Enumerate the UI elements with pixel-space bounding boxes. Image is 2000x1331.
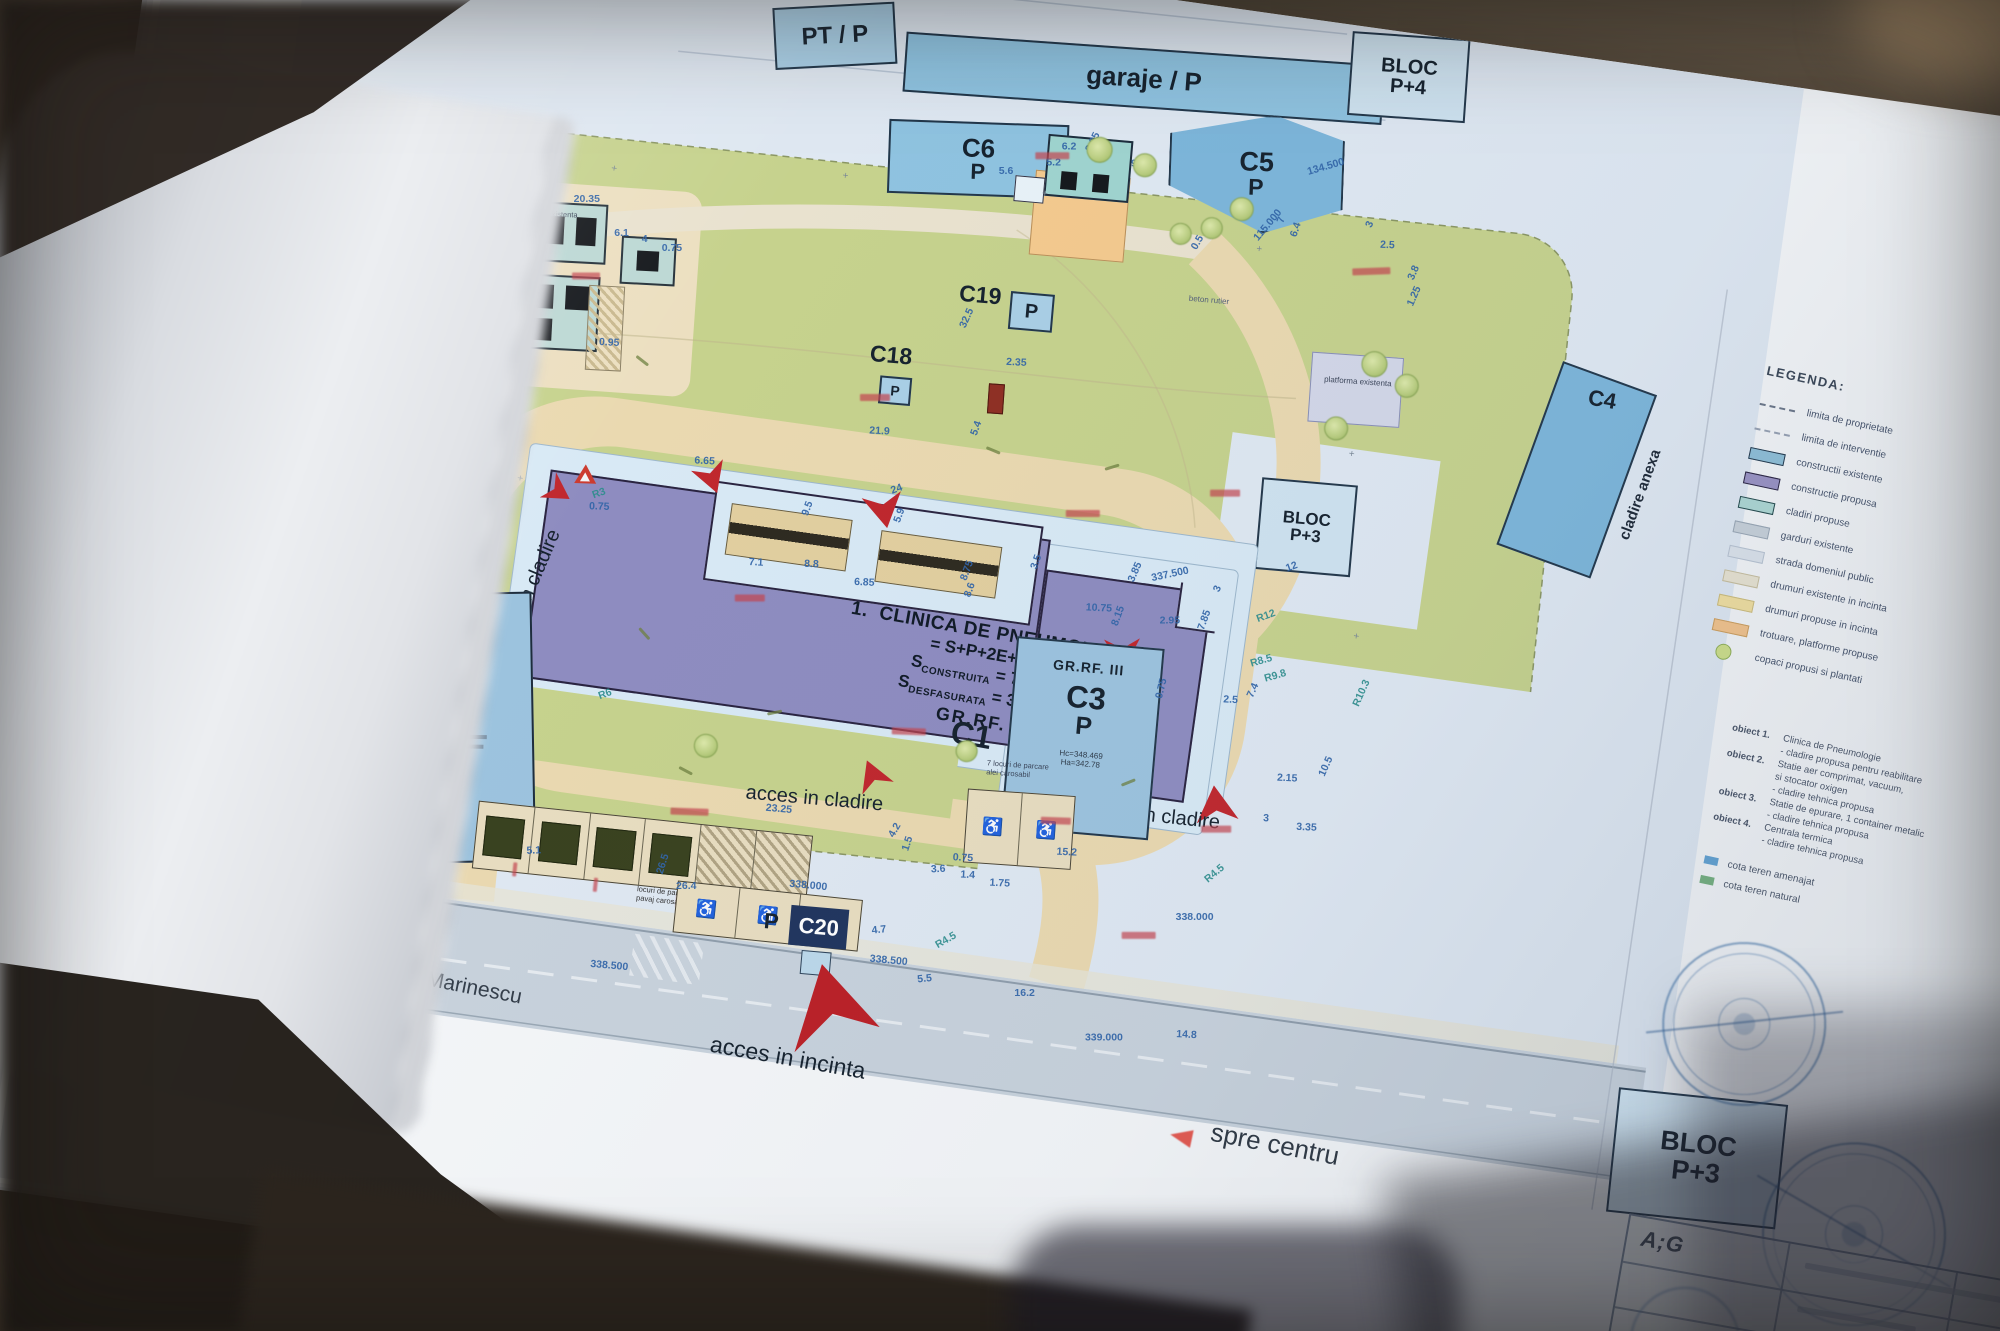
bloc-e-level: P+3 [1289,526,1321,546]
legend-swatch [1717,593,1755,612]
red-annotation [1122,932,1156,939]
red-annotation [735,594,765,601]
red-annotation [1041,817,1071,825]
red-annotation [572,273,600,280]
tech-kiosk [1013,175,1045,204]
legend-swatch [1754,427,1790,436]
building-bloc-ne: BLOC P+4 [1347,31,1471,123]
building-bloc-e: BLOC P+3 [1254,477,1358,577]
photo-scene: PT / P garaje / P C6 P BLOC P+4 C5 P C4 … [0,0,2000,1331]
legend-swatch [1748,446,1786,465]
legend-swatch [1722,569,1760,588]
building-c20-level: P [763,908,780,935]
legend-swatch [1760,402,1796,411]
building-garaje-label: garaje / P [1085,61,1202,96]
red-annotation [1352,267,1390,275]
wheelchair-icon: ♿ [695,899,718,921]
legend-swatch [1714,642,1733,661]
building-c3-fire-class: GR.RF. III [1053,657,1125,677]
container-object [987,383,1005,414]
c1-wing-step [1175,582,1221,633]
building-c18: P [878,375,912,406]
hand-shadow [1690,1010,2000,1331]
legend-swatch [1738,495,1776,514]
red-annotation [1066,510,1100,517]
building-c19-level: P [1024,301,1039,322]
red-annotation [1201,826,1231,833]
red-annotation [892,727,926,735]
building-c3-ha: Ha=342.78 [1060,758,1100,770]
legend-swatch [1712,618,1750,637]
annex-building [620,236,677,287]
wheelchair-icon: ♿ [981,817,1004,838]
existing-platform [1307,352,1404,428]
red-annotation [1210,490,1240,497]
building-c5-level: P [1248,176,1264,200]
c1-number: 1. [850,598,870,622]
red-annotation [1035,152,1069,159]
building-c3-name: C3 [1065,681,1107,716]
building-c19-name: C19 [958,280,1002,311]
cote-mark-icon [1703,855,1718,866]
cote-mark-icon [1699,875,1714,886]
red-annotation [860,394,890,401]
accessible-parking-row: ♿ ♿ [963,789,1076,870]
building-c6-level: P [970,161,985,184]
building-c19: P [1008,291,1055,333]
building-c18-level: P [890,383,901,398]
building-c20: C20 [788,905,849,950]
building-c5-name: C5 [1239,148,1274,177]
bloc-ne-level: P+4 [1389,76,1426,99]
building-pt-label: PT / P [801,22,869,50]
hatched-platform [585,285,625,372]
building-c6-name: C6 [961,134,995,162]
building-c4-name: C4 [1586,387,1618,414]
warning-triangle-icon [580,472,590,481]
legend-swatch [1727,544,1765,563]
building-c3-level: P [1074,713,1093,740]
background-blur [1850,0,2000,80]
legend-swatch [1733,520,1771,539]
building-c18-name: C18 [869,340,913,371]
red-annotation [670,808,708,816]
building-pt: PT / P [772,2,897,70]
legend-swatch [1743,471,1781,490]
